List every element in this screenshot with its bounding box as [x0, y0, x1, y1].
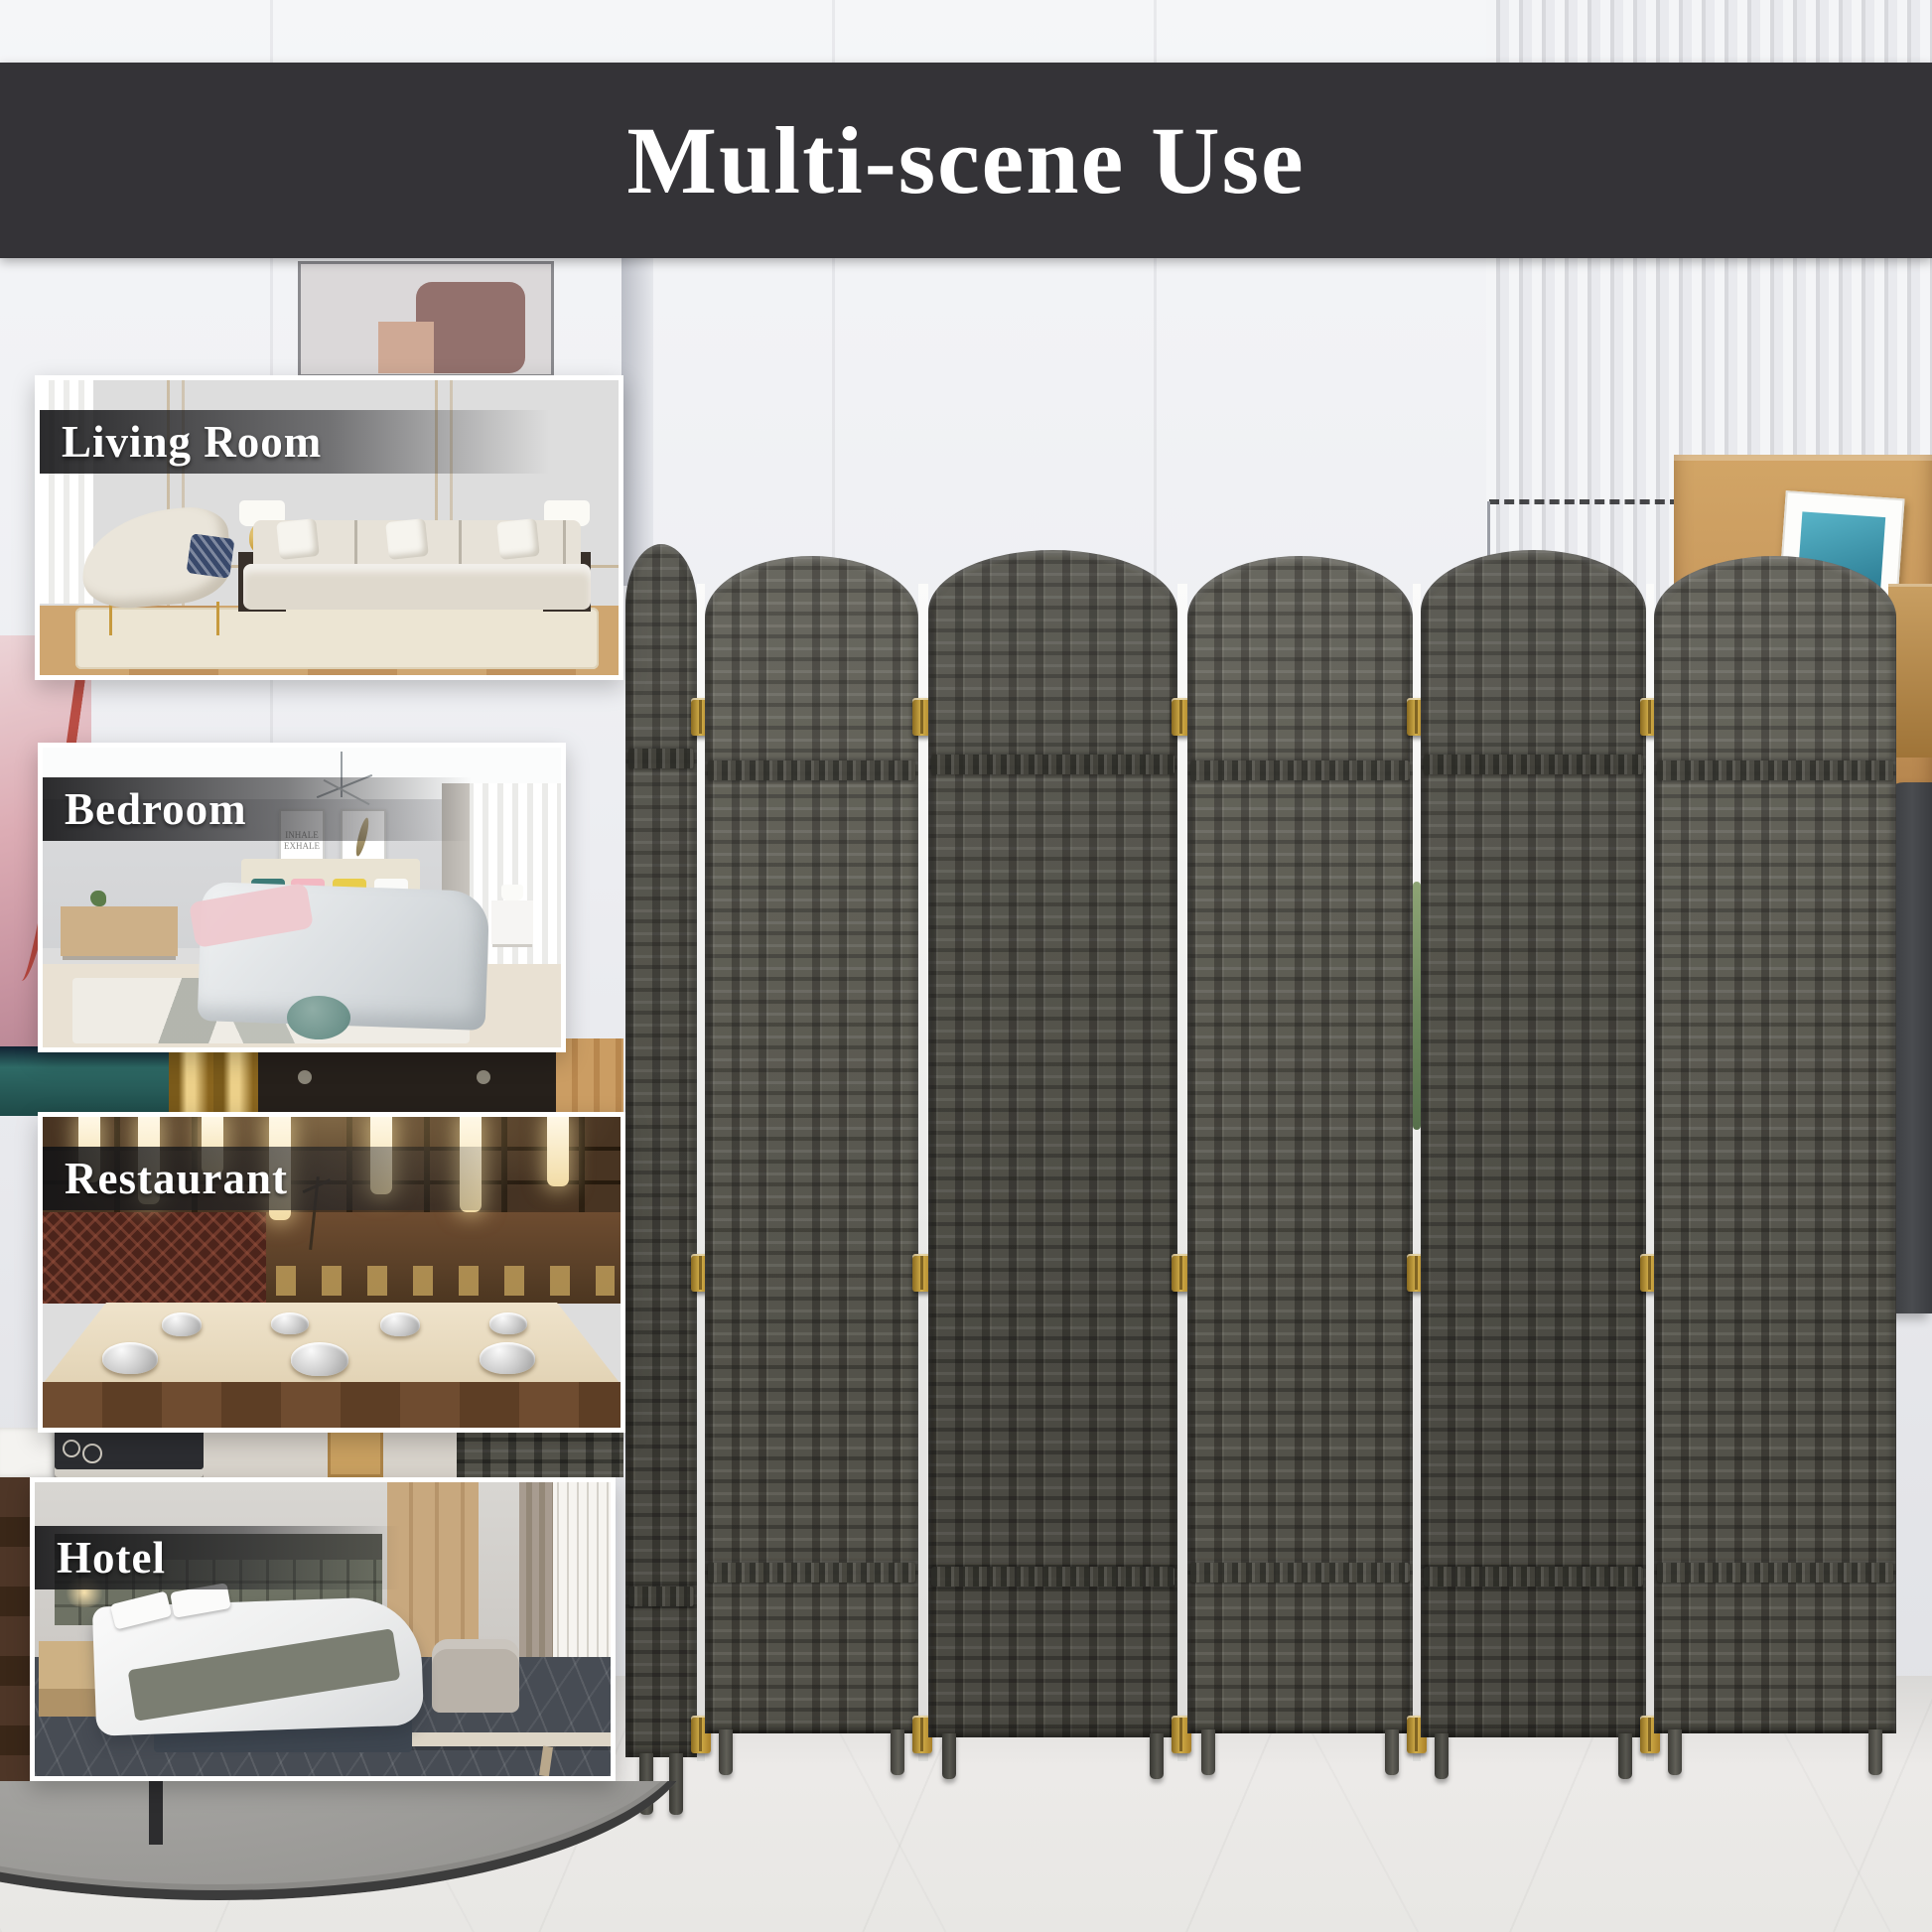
table-lamp: [501, 885, 523, 900]
navy-pillow: [186, 533, 234, 579]
page-title: Multi-scene Use: [626, 105, 1305, 215]
teal-table: [0, 1046, 169, 1116]
table-leg: [328, 1428, 383, 1477]
scene-card-bedroom: INHALE EXHALE Bedroom: [38, 743, 566, 1052]
silver-cloche: [271, 1312, 309, 1334]
chair-row: [276, 1266, 615, 1296]
divider-panel: [1654, 556, 1896, 1733]
sofa-seat: [243, 564, 591, 610]
plant-glimpse: [1413, 882, 1421, 1130]
scene-card-hotel: Hotel: [30, 1477, 616, 1781]
room-divider: [625, 544, 1896, 1765]
player-knob: [298, 1070, 312, 1084]
chaise-leg: [109, 602, 112, 635]
desk: [402, 1732, 611, 1746]
scene-label-band: Restaurant: [43, 1147, 621, 1210]
abstract-art-frame: [298, 261, 554, 377]
silver-cloche: [102, 1342, 158, 1374]
nightstand: [491, 900, 533, 944]
potted-plant: [90, 891, 106, 906]
panel-leg: [1435, 1733, 1449, 1779]
divider-panel: [625, 544, 697, 1757]
chaise-leg: [216, 602, 219, 635]
white-papers: [0, 1428, 55, 1477]
panel-leg: [942, 1733, 956, 1779]
record-player: [258, 1044, 556, 1116]
sideboard: [61, 906, 178, 956]
art-shape: [378, 322, 434, 373]
panel-leg: [1668, 1729, 1682, 1775]
eyeglasses: [63, 1440, 80, 1457]
divider-gap: [1413, 584, 1421, 1761]
lattice-screen: [43, 1212, 266, 1304]
table-front-panel: [43, 1382, 621, 1428]
scene-label-text: Bedroom: [65, 783, 247, 835]
scene-label-text: Restaurant: [65, 1153, 288, 1204]
scene-label-band: Living Room: [40, 410, 619, 474]
sofa-pillow: [385, 518, 429, 560]
scene-card-restaurant: Restaurant: [38, 1112, 625, 1433]
silver-cloche: [162, 1312, 202, 1336]
weave-patch: [457, 1428, 623, 1477]
door-edge-shadow: [621, 258, 653, 586]
dark-sideboard: [0, 1477, 30, 1781]
divider-gap: [1646, 584, 1654, 1761]
silver-cloche: [480, 1342, 535, 1374]
wood-plank-wall: [556, 1038, 623, 1116]
divider-panel: [705, 556, 918, 1733]
silver-cloche: [489, 1312, 527, 1334]
panel-leg: [891, 1729, 904, 1775]
black-book: [55, 1430, 204, 1477]
panel-leg: [1150, 1733, 1164, 1779]
scene-label-text: Hotel: [57, 1532, 166, 1584]
title-banner: Multi-scene Use: [0, 63, 1932, 258]
divider-panel: [1187, 556, 1413, 1733]
scene-label-band: Bedroom: [43, 777, 530, 841]
silver-cloche: [291, 1342, 348, 1376]
desk-strip: [0, 1428, 623, 1477]
panel-leg: [719, 1729, 733, 1775]
divider-gap: [918, 584, 928, 1761]
divider-panel: [928, 550, 1177, 1737]
hanging-rail: [1489, 499, 1680, 504]
player-knob: [477, 1070, 490, 1084]
rug: [75, 608, 599, 669]
scene-label-band: Hotel: [35, 1526, 450, 1589]
teal-pouf: [287, 996, 350, 1039]
sofa-pillow: [276, 518, 320, 560]
panel-leg: [1385, 1729, 1399, 1775]
panel-leg: [1868, 1729, 1882, 1775]
panel-leg: [1618, 1733, 1632, 1779]
divider-gap: [697, 584, 705, 1761]
silver-cloche: [380, 1312, 420, 1336]
scene-label-text: Living Room: [62, 416, 322, 468]
chair-leg: [149, 1781, 163, 1845]
panel-leg: [1201, 1729, 1215, 1775]
scene-card-living-room: Living Room: [35, 375, 623, 680]
rug-and-marble: [0, 1781, 695, 1932]
round-gray-rug: [0, 1781, 695, 1900]
armchair: [432, 1639, 519, 1713]
product-infographic: Living Room INHALE EXHALE Bedroom: [0, 0, 1932, 1932]
sofa-pillow: [496, 518, 540, 560]
divider-panel: [1421, 550, 1646, 1737]
divider-gap: [1177, 584, 1187, 1761]
